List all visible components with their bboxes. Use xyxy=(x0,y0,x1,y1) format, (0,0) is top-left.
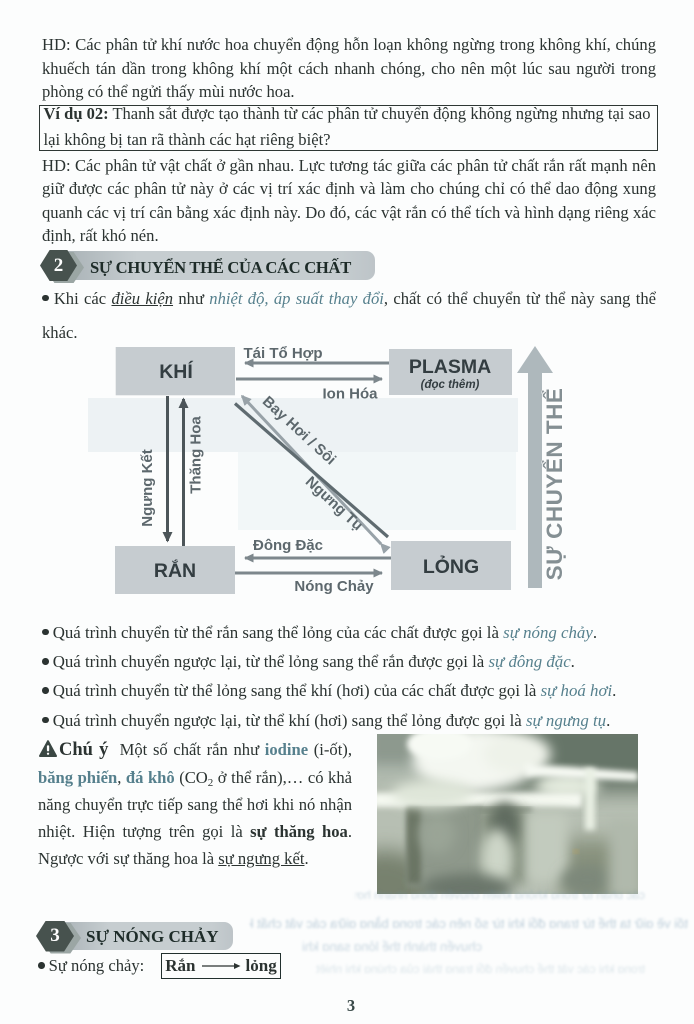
svg-text:SỰ CHUYỂN THỂ: SỰ CHUYỂN THỂ xyxy=(542,388,567,581)
svg-text:LỎNG: LỎNG xyxy=(423,554,479,578)
svg-text:Đông Đặc: Đông Đặc xyxy=(253,537,323,554)
svg-text:Ion Hóa: Ion Hóa xyxy=(323,386,379,403)
svg-text:KHÍ: KHÍ xyxy=(159,360,193,383)
svg-text:Tái Tổ Hợp: Tái Tổ Hợp xyxy=(244,345,323,362)
svg-text:RẮN: RẮN xyxy=(154,558,196,582)
svg-text:Ngưng Kết: Ngưng Kết xyxy=(139,449,156,527)
svg-text:PLASMA: PLASMA xyxy=(409,356,491,378)
svg-text:(đọc thêm): (đọc thêm) xyxy=(421,379,480,391)
svg-text:Thăng Hoa: Thăng Hoa xyxy=(188,416,205,494)
svg-text:Nóng Chảy: Nóng Chảy xyxy=(294,578,374,595)
